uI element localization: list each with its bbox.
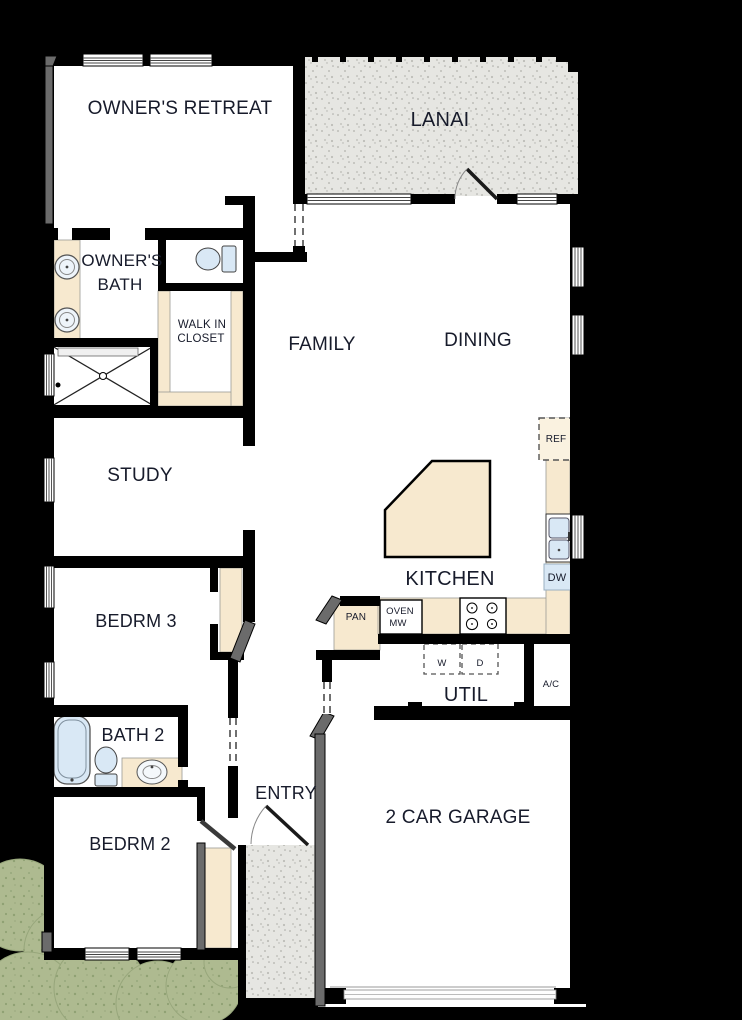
label-washer: W (437, 658, 446, 669)
label-family: FAMILY (288, 334, 355, 355)
label-study: STUDY (107, 465, 173, 486)
garage-door (330, 986, 556, 999)
kitchen-sink (546, 514, 573, 562)
label-kitchen: KITCHEN (405, 568, 494, 590)
label-owners-bath-1: OWNER'S (81, 251, 162, 270)
window (137, 948, 181, 960)
label-util: UTIL (444, 684, 488, 706)
label-dishwasher: DW (548, 572, 567, 584)
window (572, 515, 584, 559)
window (44, 458, 54, 502)
window (517, 194, 557, 204)
label-bath2: BATH 2 (102, 725, 165, 745)
window (307, 194, 411, 204)
label-walk-in-closet-1: WALK IN (178, 319, 226, 331)
label-ac: A/C (543, 679, 559, 690)
label-pantry: PAN (346, 612, 366, 623)
label-walk-in-closet-2: CLOSET (177, 333, 224, 345)
window (85, 948, 129, 960)
bath2-tub (54, 716, 90, 784)
floor-plan: OWNER'S RETREAT LANAI OWNER'S BATH WALK … (0, 0, 742, 1020)
label-owners-bath-2: BATH (98, 275, 143, 294)
label-bedrm3: BEDRM 3 (95, 611, 176, 631)
label-entry: ENTRY (255, 783, 317, 803)
label-lanai: LANAI (411, 109, 470, 131)
bath2-sink (137, 760, 167, 784)
label-owners-retreat: OWNER'S RETREAT (88, 98, 273, 119)
window (572, 247, 584, 287)
label-refrigerator: REF (546, 434, 567, 445)
window (150, 54, 212, 66)
window (572, 315, 584, 355)
window (44, 566, 54, 608)
entry-porch (245, 845, 315, 1003)
label-dryer: D (476, 658, 483, 669)
window (44, 354, 54, 396)
bath2-toilet (95, 747, 117, 786)
label-microwave: MW (389, 618, 406, 629)
label-garage: 2 CAR GARAGE (386, 807, 531, 828)
label-dining: DINING (444, 330, 512, 351)
shower (52, 346, 154, 406)
label-oven: OVEN (386, 606, 414, 617)
window (83, 54, 143, 66)
window (44, 662, 54, 698)
cooktop (460, 598, 506, 634)
label-bedrm2: BEDRM 2 (89, 834, 170, 854)
floor-plan-svg: OWNER'S RETREAT LANAI OWNER'S BATH WALK … (0, 0, 742, 1020)
